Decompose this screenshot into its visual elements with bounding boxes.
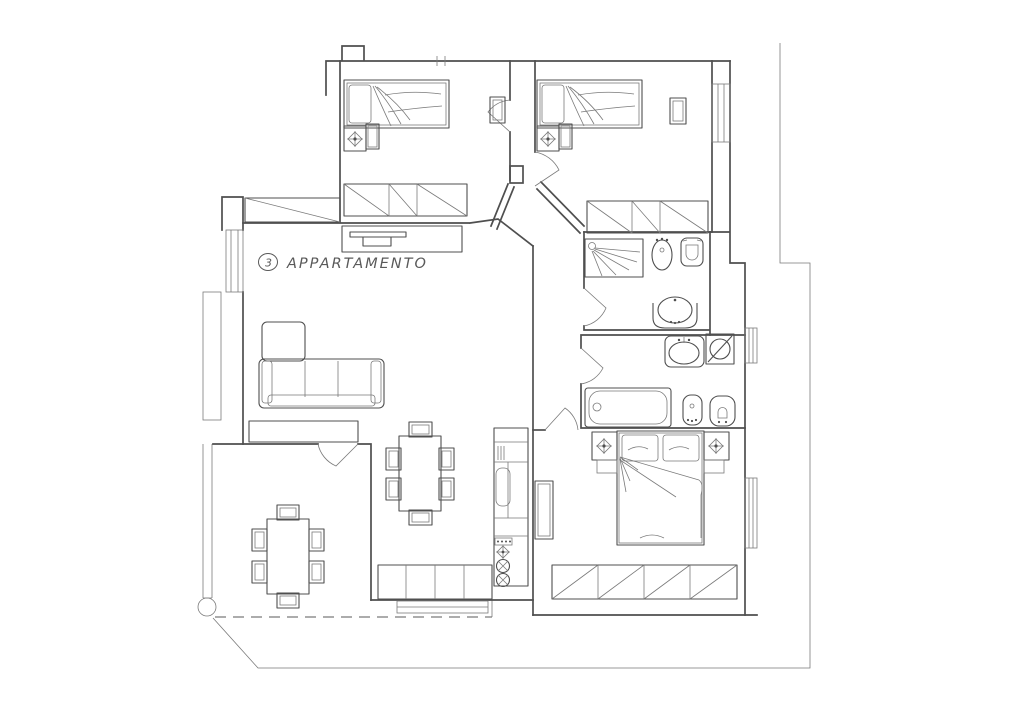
bedroom-2-furniture xyxy=(537,80,708,233)
chair xyxy=(409,510,432,525)
base-cabinets xyxy=(378,565,492,613)
single-bed xyxy=(344,80,449,128)
floor-plan-canvas: 3 APPARTAMENTO xyxy=(0,0,1017,720)
ceiling-light xyxy=(540,131,556,147)
toilet xyxy=(710,396,735,426)
chair xyxy=(277,593,299,608)
window-left-wall xyxy=(226,230,243,292)
chair xyxy=(309,561,324,583)
doors xyxy=(318,100,606,466)
door-bedroom-2 xyxy=(535,152,559,186)
wardrobe xyxy=(587,201,708,233)
terrace-rail xyxy=(203,444,212,598)
floor-plan-drawing: 3 APPARTAMENTO xyxy=(0,0,1017,720)
balcony-outline xyxy=(213,43,810,668)
bidet xyxy=(683,395,702,425)
single-bed xyxy=(537,80,642,128)
apartment-walls xyxy=(213,46,757,615)
sofa-seat-edge xyxy=(268,395,375,406)
cooktop-knobs xyxy=(495,538,512,545)
pillow xyxy=(622,435,658,461)
chaise xyxy=(262,322,305,361)
terrace-table xyxy=(252,505,324,608)
wardrobe xyxy=(552,565,737,599)
wardrobe xyxy=(344,184,467,216)
bathroom-2-fixtures xyxy=(585,334,735,427)
chair xyxy=(277,505,299,520)
shower xyxy=(585,239,643,277)
window-bedroom-right xyxy=(745,478,757,548)
column xyxy=(198,598,216,616)
corner-sofa xyxy=(259,322,384,408)
door-bathroom-2 xyxy=(581,348,603,384)
window-shaft xyxy=(712,84,730,142)
ceiling-light xyxy=(496,545,510,559)
dining-table xyxy=(386,422,454,525)
bedroom-3-furniture xyxy=(535,431,737,599)
door-terrace xyxy=(318,444,358,466)
wall-pier xyxy=(510,166,523,183)
washbasin xyxy=(653,297,697,328)
sofa-arm xyxy=(371,361,381,403)
plan-label: 3 APPARTAMENTO xyxy=(259,254,428,273)
washing-machine xyxy=(706,334,734,364)
ceiling-light xyxy=(347,131,363,147)
chair xyxy=(409,422,432,437)
cooktop-burner xyxy=(497,560,510,573)
window-bathroom-right xyxy=(745,328,757,363)
door-bedroom-1 xyxy=(488,100,510,132)
door-bathroom-1 xyxy=(584,288,606,326)
pillow xyxy=(663,435,699,461)
apartment-label: APPARTAMENTO xyxy=(286,256,428,272)
door-bedroom-3 xyxy=(545,408,578,430)
sideboard xyxy=(249,421,358,442)
ceiling-light xyxy=(596,438,612,454)
terrace-furniture xyxy=(252,505,324,608)
bidet xyxy=(652,238,672,270)
chair xyxy=(309,529,324,551)
bathtub xyxy=(585,388,671,427)
pillow xyxy=(349,85,371,123)
kitchen-unit xyxy=(494,428,528,587)
pillow xyxy=(542,85,564,123)
chair xyxy=(252,561,267,583)
radiator xyxy=(535,481,553,539)
windows xyxy=(226,56,757,548)
cooktop-burner xyxy=(497,574,510,587)
unit-number: 3 xyxy=(265,257,272,270)
chair xyxy=(252,529,267,551)
sofa-arm xyxy=(262,361,272,403)
radiator xyxy=(670,98,686,124)
washbasin xyxy=(665,336,704,367)
tv-cabinet xyxy=(342,226,462,252)
radiator xyxy=(490,97,505,123)
long-closet xyxy=(245,198,340,222)
ceiling-light xyxy=(708,438,724,454)
double-bed xyxy=(617,431,704,545)
drainer xyxy=(498,446,504,460)
toilet xyxy=(681,238,703,266)
bedroom-1-furniture xyxy=(344,80,505,216)
window-ledge xyxy=(203,292,221,420)
